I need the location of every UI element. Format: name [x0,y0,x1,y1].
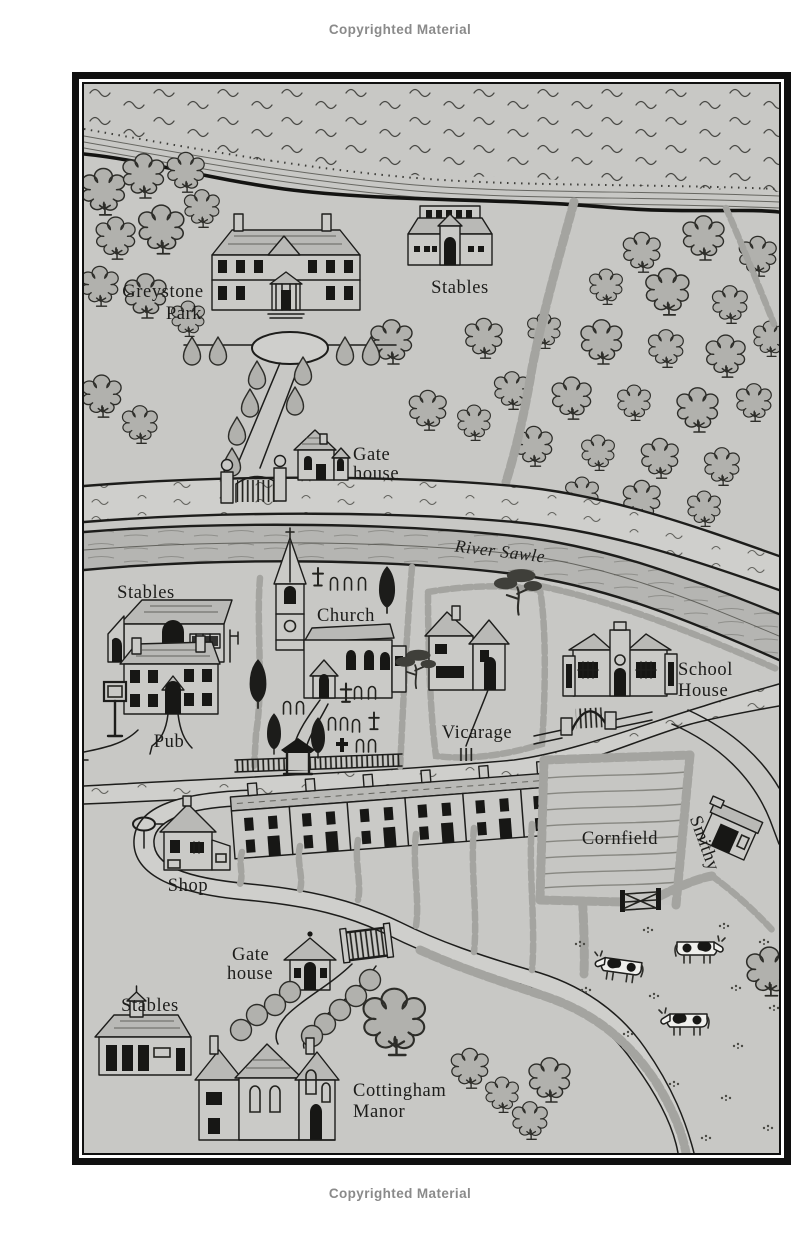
map-frame: Greystone Park Stables Gate house River … [72,72,791,1165]
stables-south-label: Stables [121,996,179,1016]
pub-label: Pub [154,732,185,752]
copyright-notice-bottom: Copyrighted Material [0,1186,800,1201]
vicarage-label: Vicarage [442,723,512,743]
book-page: Copyrighted Material [0,0,800,1233]
greystone-park-label: Park [166,304,202,324]
cottingham-manor-label: Cottingham [353,1081,446,1101]
gate-house-north-label: Gate [353,445,390,465]
stables-north-building [408,206,492,265]
copyright-notice-top: Copyrighted Material [0,22,800,37]
village-map-illustration: Greystone Park Stables Gate house River … [84,84,779,1153]
greystone-park-label: Greystone [122,282,203,302]
church-label: Church [317,606,375,626]
gate-house-north-label: house [353,464,399,484]
cornfield-label: Cornfield [582,829,658,849]
gate-house-south-label: house [227,964,273,984]
vicarage-gate [458,748,474,761]
cottingham-manor-label: Manor [353,1102,405,1122]
map-border-inner: Greystone Park Stables Gate house River … [82,82,781,1155]
gate-house-south-label: Gate [232,945,269,965]
shop-label: Shop [168,876,208,896]
bush-icon [231,1020,252,1041]
cottingham-manor-building [195,1036,339,1140]
school-house-label: House [678,681,728,701]
stables-north-label: Stables [431,278,489,298]
bush-icon [247,1005,268,1026]
school-house-label: School [678,660,733,680]
greystone-park-house [212,214,360,318]
stables-west-label: Stables [117,583,175,603]
